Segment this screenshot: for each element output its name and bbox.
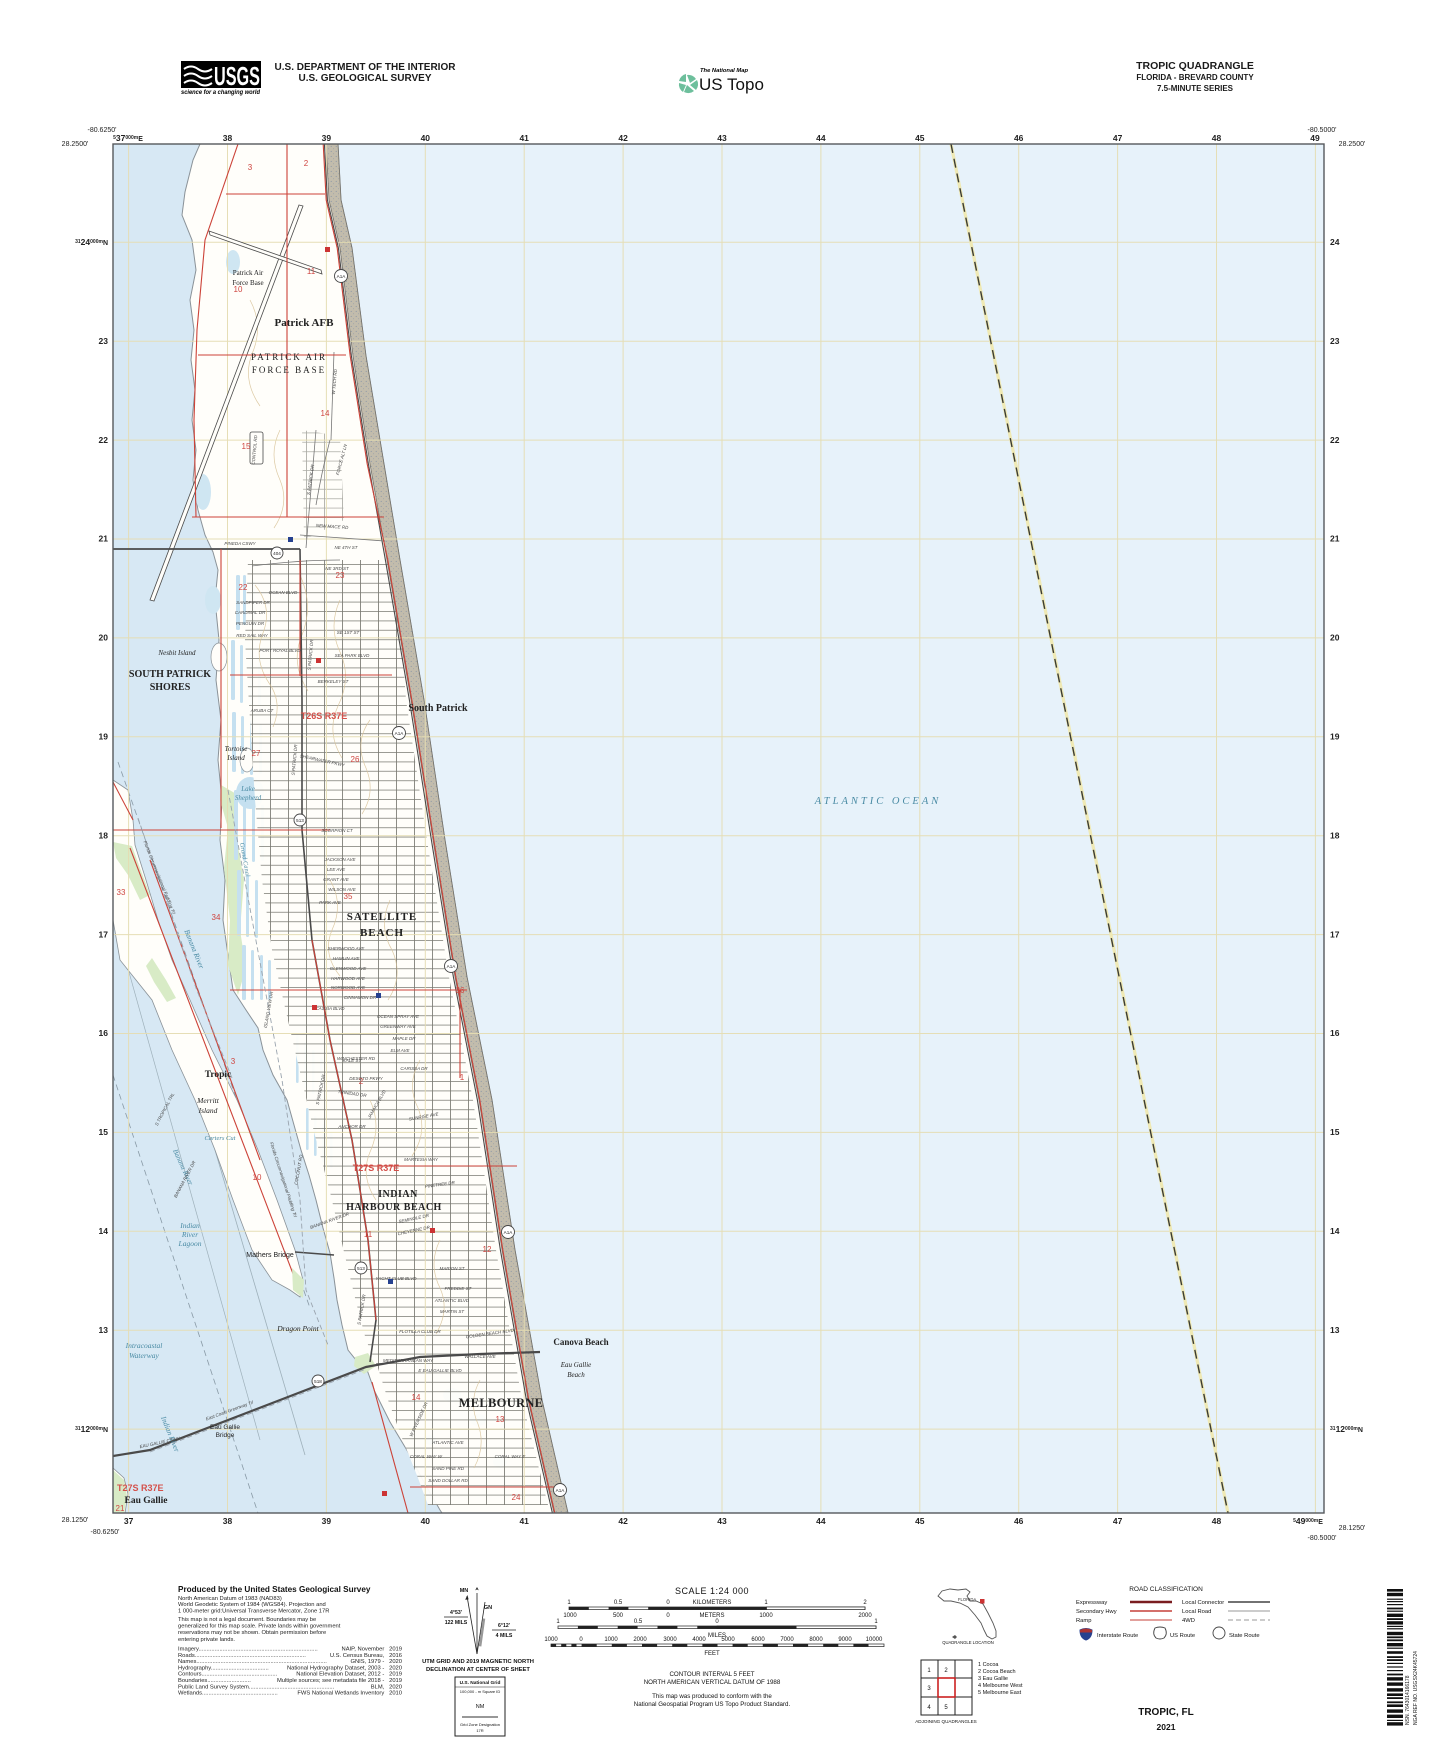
svg-text:24: 24 xyxy=(512,1493,521,1502)
svg-text:41: 41 xyxy=(519,133,529,143)
svg-text:38: 38 xyxy=(223,1516,233,1526)
svg-text:28.2500': 28.2500' xyxy=(1339,141,1366,148)
svg-text:SHORES: SHORES xyxy=(150,682,191,693)
svg-text:Island: Island xyxy=(226,754,245,762)
svg-text:Secondary Hwy: Secondary Hwy xyxy=(1076,1609,1117,1615)
svg-text:Public Land Survey Syste: Public Land Survey System...............… xyxy=(178,1684,335,1690)
svg-text:513: 513 xyxy=(357,1266,365,1271)
svg-text:Tropic: Tropic xyxy=(205,1070,232,1080)
svg-text:WALLACE AVE: WALLACE AVE xyxy=(464,1354,496,1359)
svg-text:4WD: 4WD xyxy=(1182,1618,1195,1624)
svg-text:26: 26 xyxy=(351,755,360,764)
svg-text:OCEAN BLVD: OCEAN BLVD xyxy=(269,590,299,595)
svg-text:This map was produced to confo: This map was produced to conform with th… xyxy=(652,1693,772,1700)
svg-text:39: 39 xyxy=(322,133,332,143)
svg-text:T26S R37E: T26S R37E xyxy=(301,711,348,721)
svg-text:River: River xyxy=(181,1230,198,1239)
svg-text:ANCHOR DR: ANCHOR DR xyxy=(337,1124,366,1129)
svg-text:Roads.........................: Roads...................................… xyxy=(178,1653,306,1659)
svg-text:6°12': 6°12' xyxy=(498,1623,510,1629)
svg-text:22: 22 xyxy=(1330,435,1340,445)
svg-text:8000: 8000 xyxy=(809,1637,823,1643)
svg-text:National Hydrography Dataset: National Hydrography Dataset, 2003 - 202… xyxy=(287,1665,402,1671)
svg-text:Indian: Indian xyxy=(179,1221,200,1230)
svg-text:27: 27 xyxy=(252,749,261,758)
svg-text:BLM, 2020: BLM, 2020 xyxy=(371,1684,402,1690)
svg-text:BERKELEY ST: BERKELEY ST xyxy=(318,679,350,684)
svg-text:A1A: A1A xyxy=(395,731,405,736)
svg-text:MELBOURNE: MELBOURNE xyxy=(459,1396,544,1410)
svg-text:3000: 3000 xyxy=(663,1637,677,1643)
svg-text:SHERWOOD AVE: SHERWOOD AVE xyxy=(328,946,366,951)
svg-text:BEACH: BEACH xyxy=(360,927,404,939)
svg-text:41: 41 xyxy=(519,1516,529,1526)
svg-text:5000: 5000 xyxy=(721,1637,735,1643)
svg-text:11: 11 xyxy=(364,1230,373,1239)
svg-text:21: 21 xyxy=(1330,534,1340,544)
svg-text:ELM AVE: ELM AVE xyxy=(390,1048,410,1053)
svg-text:NE 3RD ST: NE 3RD ST xyxy=(325,566,350,571)
svg-text:44: 44 xyxy=(816,1516,826,1526)
svg-text:4 MILS: 4 MILS xyxy=(496,1633,513,1639)
svg-text:YACHT CLUB BLVD: YACHT CLUB BLVD xyxy=(375,1276,417,1281)
svg-text:TROPIC, FL: TROPIC, FL xyxy=(1138,1707,1194,1718)
svg-text:entering private lands.: entering private lands. xyxy=(178,1637,235,1643)
svg-text:43: 43 xyxy=(717,1516,727,1526)
svg-text:Multiple sources; see metad: Multiple sources; see metadata file 2018… xyxy=(277,1678,402,1684)
svg-text:SAND DOLLAR RD: SAND DOLLAR RD xyxy=(428,1478,468,1483)
svg-text:Island: Island xyxy=(198,1106,218,1115)
svg-text:33: 33 xyxy=(117,888,126,897)
svg-text:Lake: Lake xyxy=(240,785,255,793)
svg-text:Eau Gallie: Eau Gallie xyxy=(124,1496,167,1506)
svg-text:DECLINATION AT CENTER OF SHEET: DECLINATION AT CENTER OF SHEET xyxy=(426,1667,530,1673)
svg-text:GREENWAY AVE: GREENWAY AVE xyxy=(380,1024,417,1029)
svg-text:This map is not a legal docume: This map is not a legal document. Bounda… xyxy=(178,1617,316,1623)
svg-text:U.S. Census Bureau, 2016: U.S. Census Bureau, 2016 xyxy=(330,1653,402,1659)
svg-text:NGA REF NO. USGSX24K45724: NGA REF NO. USGSX24K45724 xyxy=(1413,1651,1419,1725)
svg-text:PINEDA CSWY: PINEDA CSWY xyxy=(224,541,256,546)
svg-text:513: 513 xyxy=(296,818,304,823)
svg-text:DESOTO PKWY: DESOTO PKWY xyxy=(349,1076,383,1081)
svg-text:PORT ROYAL BLVD: PORT ROYAL BLVD xyxy=(259,648,301,653)
svg-text:GRANT AVE: GRANT AVE xyxy=(323,877,350,882)
svg-text:NAIP, November 2019: NAIP, November 2019 xyxy=(342,1647,402,1653)
svg-text:ADJOINING QUADRANGLES: ADJOINING QUADRANGLES xyxy=(915,1719,977,1724)
svg-text:GNIS, 1979 - 2020: GNIS, 1979 - 2020 xyxy=(350,1659,402,1665)
svg-text:10: 10 xyxy=(253,1173,262,1182)
svg-text:SATELLITE: SATELLITE xyxy=(347,911,418,923)
svg-text:GN: GN xyxy=(484,1605,492,1611)
svg-text:39: 39 xyxy=(322,1516,332,1526)
svg-text:14: 14 xyxy=(1330,1226,1340,1236)
svg-text:-80.6250': -80.6250' xyxy=(88,127,117,134)
svg-text:42: 42 xyxy=(618,1516,628,1526)
svg-text:Names.........................: Names...................................… xyxy=(178,1659,327,1665)
svg-text:CORAL WAY W: CORAL WAY W xyxy=(410,1454,443,1459)
svg-text:Ramp: Ramp xyxy=(1076,1618,1091,1624)
svg-text:-80.5000': -80.5000' xyxy=(1308,1535,1337,1542)
svg-text:Intracoastal: Intracoastal xyxy=(125,1341,163,1350)
svg-text:24: 24 xyxy=(1330,237,1340,247)
svg-text:Patrick Air: Patrick Air xyxy=(233,269,264,277)
svg-text:Local Connector: Local Connector xyxy=(1182,1600,1224,1606)
svg-text:48: 48 xyxy=(1212,133,1222,143)
svg-text:MARION ST: MARION ST xyxy=(439,1266,465,1271)
svg-text:UTM GRID AND 2019 MAGNETIC NOR: UTM GRID AND 2019 MAGNETIC NORTH xyxy=(422,1659,534,1665)
svg-text:FEET: FEET xyxy=(704,1651,720,1657)
svg-text:3 Eau Gallie: 3 Eau Gallie xyxy=(978,1676,1008,1682)
svg-text:FLOTILLA CLUB DR: FLOTILLA CLUB DR xyxy=(399,1329,441,1334)
svg-text:World Geodetic System of 1984: World Geodetic System of 1984 (WGS84). P… xyxy=(178,1602,326,1608)
svg-text:1 Cocoa: 1 Cocoa xyxy=(978,1662,999,1668)
svg-text:Grid Zone Designation: Grid Zone Designation xyxy=(460,1722,500,1727)
svg-text:SEA PARK BLVD: SEA PARK BLVD xyxy=(335,653,371,658)
svg-text:17R: 17R xyxy=(476,1728,483,1733)
svg-text:2000: 2000 xyxy=(858,1613,872,1619)
svg-text:23: 23 xyxy=(336,571,345,580)
svg-text:Tortoise: Tortoise xyxy=(225,745,248,753)
svg-text:FWS National Wetlands Inven: FWS National Wetlands Inventory 2010 xyxy=(297,1691,402,1697)
svg-text:17: 17 xyxy=(99,929,109,939)
svg-text:E EAU GALLIE BLVD: E EAU GALLIE BLVD xyxy=(418,1368,462,1373)
svg-text:Hydrography...................: Hydrography.............................… xyxy=(178,1665,269,1671)
svg-text:Contours......................: Contours................................… xyxy=(178,1672,278,1678)
svg-text:MARTIN ST: MARTIN ST xyxy=(440,1309,465,1314)
svg-text:A1A: A1A xyxy=(337,274,347,279)
svg-text:Patrick AFB: Patrick AFB xyxy=(275,317,335,329)
svg-text:PENGUIN DR: PENGUIN DR xyxy=(236,621,265,626)
svg-text:U.S. GEOLOGICAL SURVEY: U.S. GEOLOGICAL SURVEY xyxy=(299,73,432,84)
svg-text:23: 23 xyxy=(99,336,109,346)
svg-text:45: 45 xyxy=(915,1516,925,1526)
svg-text:28.1250': 28.1250' xyxy=(62,1517,89,1524)
svg-text:23: 23 xyxy=(1330,336,1340,346)
svg-text:47: 47 xyxy=(1113,133,1123,143)
svg-text:28.1250': 28.1250' xyxy=(1339,1525,1366,1532)
svg-text:ATLANTIC BLVD: ATLANTIC BLVD xyxy=(434,1298,470,1303)
svg-text:MEDITERRANEAN WAY: MEDITERRANEAN WAY xyxy=(383,1358,434,1363)
svg-text:NORWOOD AVE: NORWOOD AVE xyxy=(331,985,366,990)
svg-text:WILSON AVE: WILSON AVE xyxy=(328,887,357,892)
svg-text:Waterway: Waterway xyxy=(129,1351,159,1360)
svg-text:100,000 - m Square ID: 100,000 - m Square ID xyxy=(460,1689,501,1694)
svg-text:SANDPIPER DR: SANDPIPER DR xyxy=(236,600,271,605)
svg-text:3: 3 xyxy=(231,1057,236,1066)
svg-text:US Topo: US Topo xyxy=(699,75,764,94)
svg-text:35: 35 xyxy=(344,892,353,901)
svg-text:National Geospatial Program US: National Geospatial Program US Topo Prod… xyxy=(634,1701,791,1708)
svg-text:NE 4TH ST: NE 4TH ST xyxy=(334,545,358,550)
svg-text:19: 19 xyxy=(99,732,109,742)
svg-text:Merritt: Merritt xyxy=(196,1096,220,1105)
svg-text:2: 2 xyxy=(304,159,309,168)
svg-text:RED SAIL WAY: RED SAIL WAY xyxy=(236,633,269,638)
svg-text:22: 22 xyxy=(239,583,248,592)
svg-text:5 Melbourne East: 5 Melbourne East xyxy=(978,1690,1022,1696)
svg-text:4000: 4000 xyxy=(692,1637,706,1643)
svg-text:MN: MN xyxy=(460,1588,469,1594)
svg-text:GLENWOOD AVE: GLENWOOD AVE xyxy=(330,966,368,971)
svg-text:CORAL WAY E: CORAL WAY E xyxy=(495,1454,527,1459)
svg-text:3: 3 xyxy=(248,163,253,172)
svg-text:A1A: A1A xyxy=(556,1488,566,1493)
svg-text:FORCE BASE: FORCE BASE xyxy=(252,365,326,375)
svg-text:science for a changing world: science for a changing world xyxy=(181,89,261,96)
svg-text:Imagery.......................: Imagery.................................… xyxy=(178,1647,318,1653)
svg-text:43: 43 xyxy=(717,133,727,143)
svg-text:1000: 1000 xyxy=(563,1613,577,1619)
svg-text:1 000-meter grid:Universal Tra: 1 000-meter grid:Universal Transverse Me… xyxy=(178,1608,329,1614)
svg-text:404: 404 xyxy=(273,551,281,556)
svg-text:13: 13 xyxy=(99,1325,109,1335)
svg-text:U.S. DEPARTMENT OF THE INTERIO: U.S. DEPARTMENT OF THE INTERIOR xyxy=(275,62,457,73)
svg-text:14: 14 xyxy=(412,1393,421,1402)
svg-text:QUADRANGLE LOCATION: QUADRANGLE LOCATION xyxy=(942,1640,994,1645)
svg-text:A1A: A1A xyxy=(447,964,457,969)
svg-text:48: 48 xyxy=(1212,1516,1222,1526)
svg-text:46: 46 xyxy=(1014,1516,1024,1526)
svg-text:FLORIDA: FLORIDA xyxy=(958,1597,976,1602)
svg-text:13: 13 xyxy=(1330,1325,1340,1335)
svg-text:PATRICK AIR: PATRICK AIR xyxy=(251,352,327,362)
svg-text:CASSIA BLVD: CASSIA BLVD xyxy=(315,1006,345,1011)
svg-text:HARWOOD AVE: HARWOOD AVE xyxy=(331,976,366,981)
svg-text:SCALE 1:24 000: SCALE 1:24 000 xyxy=(675,1586,749,1596)
svg-text:34: 34 xyxy=(212,913,221,922)
svg-text:0.5: 0.5 xyxy=(614,1600,623,1606)
svg-text:LEE AVE: LEE AVE xyxy=(327,867,346,872)
svg-text:13: 13 xyxy=(496,1415,505,1424)
svg-text:State Route: State Route xyxy=(1229,1633,1260,1639)
svg-text:CONTOUR INTERVAL 5 FEET: CONTOUR INTERVAL 5 FEET xyxy=(669,1671,754,1678)
svg-text:A1A: A1A xyxy=(504,1230,514,1235)
svg-text:49: 49 xyxy=(1310,133,1320,143)
svg-text:HAMLIN AVE: HAMLIN AVE xyxy=(333,956,361,961)
svg-text:METERS: METERS xyxy=(699,1613,724,1619)
svg-text:OCEAN SPRAY AVE: OCEAN SPRAY AVE xyxy=(377,1014,420,1019)
svg-text:Boundaries....................: Boundaries........................... xyxy=(178,1678,251,1684)
svg-text:ROAD CLASSIFICATION: ROAD CLASSIFICATION xyxy=(1129,1586,1203,1593)
svg-text:16: 16 xyxy=(99,1028,109,1038)
svg-text:38: 38 xyxy=(223,133,233,143)
svg-text:6000: 6000 xyxy=(751,1637,765,1643)
svg-text:Nesbit Island: Nesbit Island xyxy=(157,649,196,657)
svg-text:1000: 1000 xyxy=(759,1613,773,1619)
svg-text:CARISSA DR: CARISSA DR xyxy=(400,1066,428,1071)
svg-text:518: 518 xyxy=(314,1379,322,1384)
svg-text:Shepherd: Shepherd xyxy=(235,794,262,802)
svg-text:37: 37 xyxy=(124,1516,134,1526)
svg-text:Mathers Bridge: Mathers Bridge xyxy=(246,1252,294,1259)
svg-text:20: 20 xyxy=(99,633,109,643)
svg-text:7000: 7000 xyxy=(780,1637,794,1643)
svg-text:12: 12 xyxy=(483,1245,492,1254)
svg-text:NM: NM xyxy=(476,1704,485,1710)
svg-text:SCORPION CT: SCORPION CT xyxy=(321,828,354,833)
svg-text:10: 10 xyxy=(234,285,243,294)
svg-text:14: 14 xyxy=(99,1226,109,1236)
svg-text:FLORIDA - BREVARD COUNTY: FLORIDA - BREVARD COUNTY xyxy=(1136,73,1254,82)
svg-text:1000: 1000 xyxy=(604,1637,618,1643)
svg-text:US Route: US Route xyxy=(1170,1633,1195,1639)
svg-text:15: 15 xyxy=(99,1127,109,1137)
svg-text:15: 15 xyxy=(1330,1127,1340,1137)
svg-text:Beach: Beach xyxy=(567,1371,585,1379)
svg-text:HARBOUR BEACH: HARBOUR BEACH xyxy=(346,1202,442,1213)
svg-text:0.5: 0.5 xyxy=(634,1619,643,1625)
svg-text:KALE ST: KALE ST xyxy=(343,1058,363,1063)
svg-text:20: 20 xyxy=(1330,633,1340,643)
svg-text:reservations may not be shown.: reservations may not be shown. Obtain pe… xyxy=(178,1630,326,1636)
svg-text:CINNAMON DR: CINNAMON DR xyxy=(344,995,377,1000)
svg-text:Eau Gallie: Eau Gallie xyxy=(560,1361,592,1369)
svg-text:28.2500': 28.2500' xyxy=(62,141,89,148)
svg-text:KILOMETERS: KILOMETERS xyxy=(693,1600,732,1606)
svg-text:21: 21 xyxy=(99,534,109,544)
svg-text:South Patrick: South Patrick xyxy=(408,703,468,714)
svg-text:generalized for this map scale: generalized for this map scale. Private … xyxy=(178,1624,341,1630)
svg-text:T27S R37E: T27S R37E xyxy=(353,1163,400,1173)
svg-text:10000: 10000 xyxy=(866,1637,883,1643)
svg-text:2021: 2021 xyxy=(1157,1722,1176,1732)
svg-text:JACKSON AVE: JACKSON AVE xyxy=(323,857,356,862)
svg-text:SAND PINE RD: SAND PINE RD xyxy=(432,1466,465,1471)
svg-text:42: 42 xyxy=(618,133,628,143)
svg-text:Expressway: Expressway xyxy=(1076,1600,1107,1606)
svg-text:47: 47 xyxy=(1113,1516,1123,1526)
svg-text:USGS: USGS xyxy=(214,61,260,91)
svg-text:NORTH AMERICAN VERTICAL DATUM: NORTH AMERICAN VERTICAL DATUM OF 1988 xyxy=(644,1679,781,1686)
svg-text:4 Melbourne West: 4 Melbourne West xyxy=(978,1683,1023,1689)
svg-text:11: 11 xyxy=(307,267,316,276)
svg-text:15: 15 xyxy=(242,442,251,451)
svg-text:40: 40 xyxy=(421,133,431,143)
svg-text:Eau Gallie: Eau Gallie xyxy=(210,1424,240,1431)
svg-text:2000: 2000 xyxy=(633,1637,647,1643)
svg-text:500: 500 xyxy=(613,1613,624,1619)
svg-text:46: 46 xyxy=(1014,133,1024,143)
svg-text:-80.6250': -80.6250' xyxy=(91,1529,120,1536)
svg-text:36: 36 xyxy=(456,986,465,995)
svg-text:18: 18 xyxy=(1330,830,1340,840)
svg-text:4°53': 4°53' xyxy=(450,1610,462,1616)
svg-text:Local Road: Local Road xyxy=(1182,1609,1211,1615)
svg-text:14: 14 xyxy=(321,409,330,418)
svg-text:SE 1ST ST: SE 1ST ST xyxy=(337,630,361,635)
svg-text:FREDDIE ST: FREDDIE ST xyxy=(445,1286,473,1291)
svg-text:40: 40 xyxy=(421,1516,431,1526)
svg-text:19: 19 xyxy=(1330,732,1340,742)
svg-text:1000: 1000 xyxy=(544,1637,558,1643)
svg-text:1: 1 xyxy=(460,1073,465,1082)
svg-text:T27S R37E: T27S R37E xyxy=(117,1483,164,1493)
svg-text:Interstate Route: Interstate Route xyxy=(1097,1633,1138,1639)
svg-text:NSN. 7643014166178: NSN. 7643014166178 xyxy=(1405,1675,1411,1725)
svg-text:TROPIC QUADRANGLE: TROPIC QUADRANGLE xyxy=(1136,60,1254,72)
svg-text:ARUBA CT: ARUBA CT xyxy=(250,708,275,713)
svg-text:2 Cocoa Beach: 2 Cocoa Beach xyxy=(978,1669,1016,1675)
svg-text:ATLANTIC AVE: ATLANTIC AVE xyxy=(431,1440,464,1445)
svg-text:18: 18 xyxy=(99,830,109,840)
svg-text:Canova Beach: Canova Beach xyxy=(553,1337,608,1347)
svg-text:ATLANTIC OCEAN: ATLANTIC OCEAN xyxy=(814,796,942,807)
svg-text:16: 16 xyxy=(1330,1028,1340,1038)
svg-text:Dragon Point: Dragon Point xyxy=(276,1324,319,1333)
svg-text:North American Datum of 1983 (: North American Datum of 1983 (NAD83) xyxy=(178,1596,282,1602)
svg-text:Produced by the United States: Produced by the United States Geological… xyxy=(178,1585,371,1594)
svg-text:MAPLE DR: MAPLE DR xyxy=(392,1036,416,1041)
svg-text:MARTESIA WAY: MARTESIA WAY xyxy=(404,1157,439,1162)
svg-text:National Elevation Dataset, 20: National Elevation Dataset, 2012 - 2019 xyxy=(296,1672,402,1678)
svg-text:17: 17 xyxy=(1330,929,1340,939)
svg-text:122 MILS: 122 MILS xyxy=(445,1620,468,1626)
svg-text:U.S. National Grid: U.S. National Grid xyxy=(460,1680,501,1686)
svg-text:45: 45 xyxy=(915,133,925,143)
svg-text:44: 44 xyxy=(816,133,826,143)
svg-text:Lagoon: Lagoon xyxy=(178,1239,202,1248)
svg-text:INDIAN: INDIAN xyxy=(378,1189,418,1200)
svg-text:The National Map: The National Map xyxy=(700,68,748,74)
svg-text:Carters Cut: Carters Cut xyxy=(205,1135,236,1142)
svg-text:22: 22 xyxy=(99,435,109,445)
svg-text:Bridge: Bridge xyxy=(216,1432,235,1439)
svg-text:PARK AVE: PARK AVE xyxy=(319,900,342,905)
svg-text:SOUTH PATRICK: SOUTH PATRICK xyxy=(129,669,211,680)
svg-text:Wetlands......................: Wetlands................................… xyxy=(178,1691,278,1697)
svg-text:21: 21 xyxy=(116,1504,125,1513)
svg-text:CARDINAL DR: CARDINAL DR xyxy=(235,610,266,615)
svg-text:9000: 9000 xyxy=(838,1637,852,1643)
svg-text:7.5-MINUTE SERIES: 7.5-MINUTE SERIES xyxy=(1157,84,1234,93)
